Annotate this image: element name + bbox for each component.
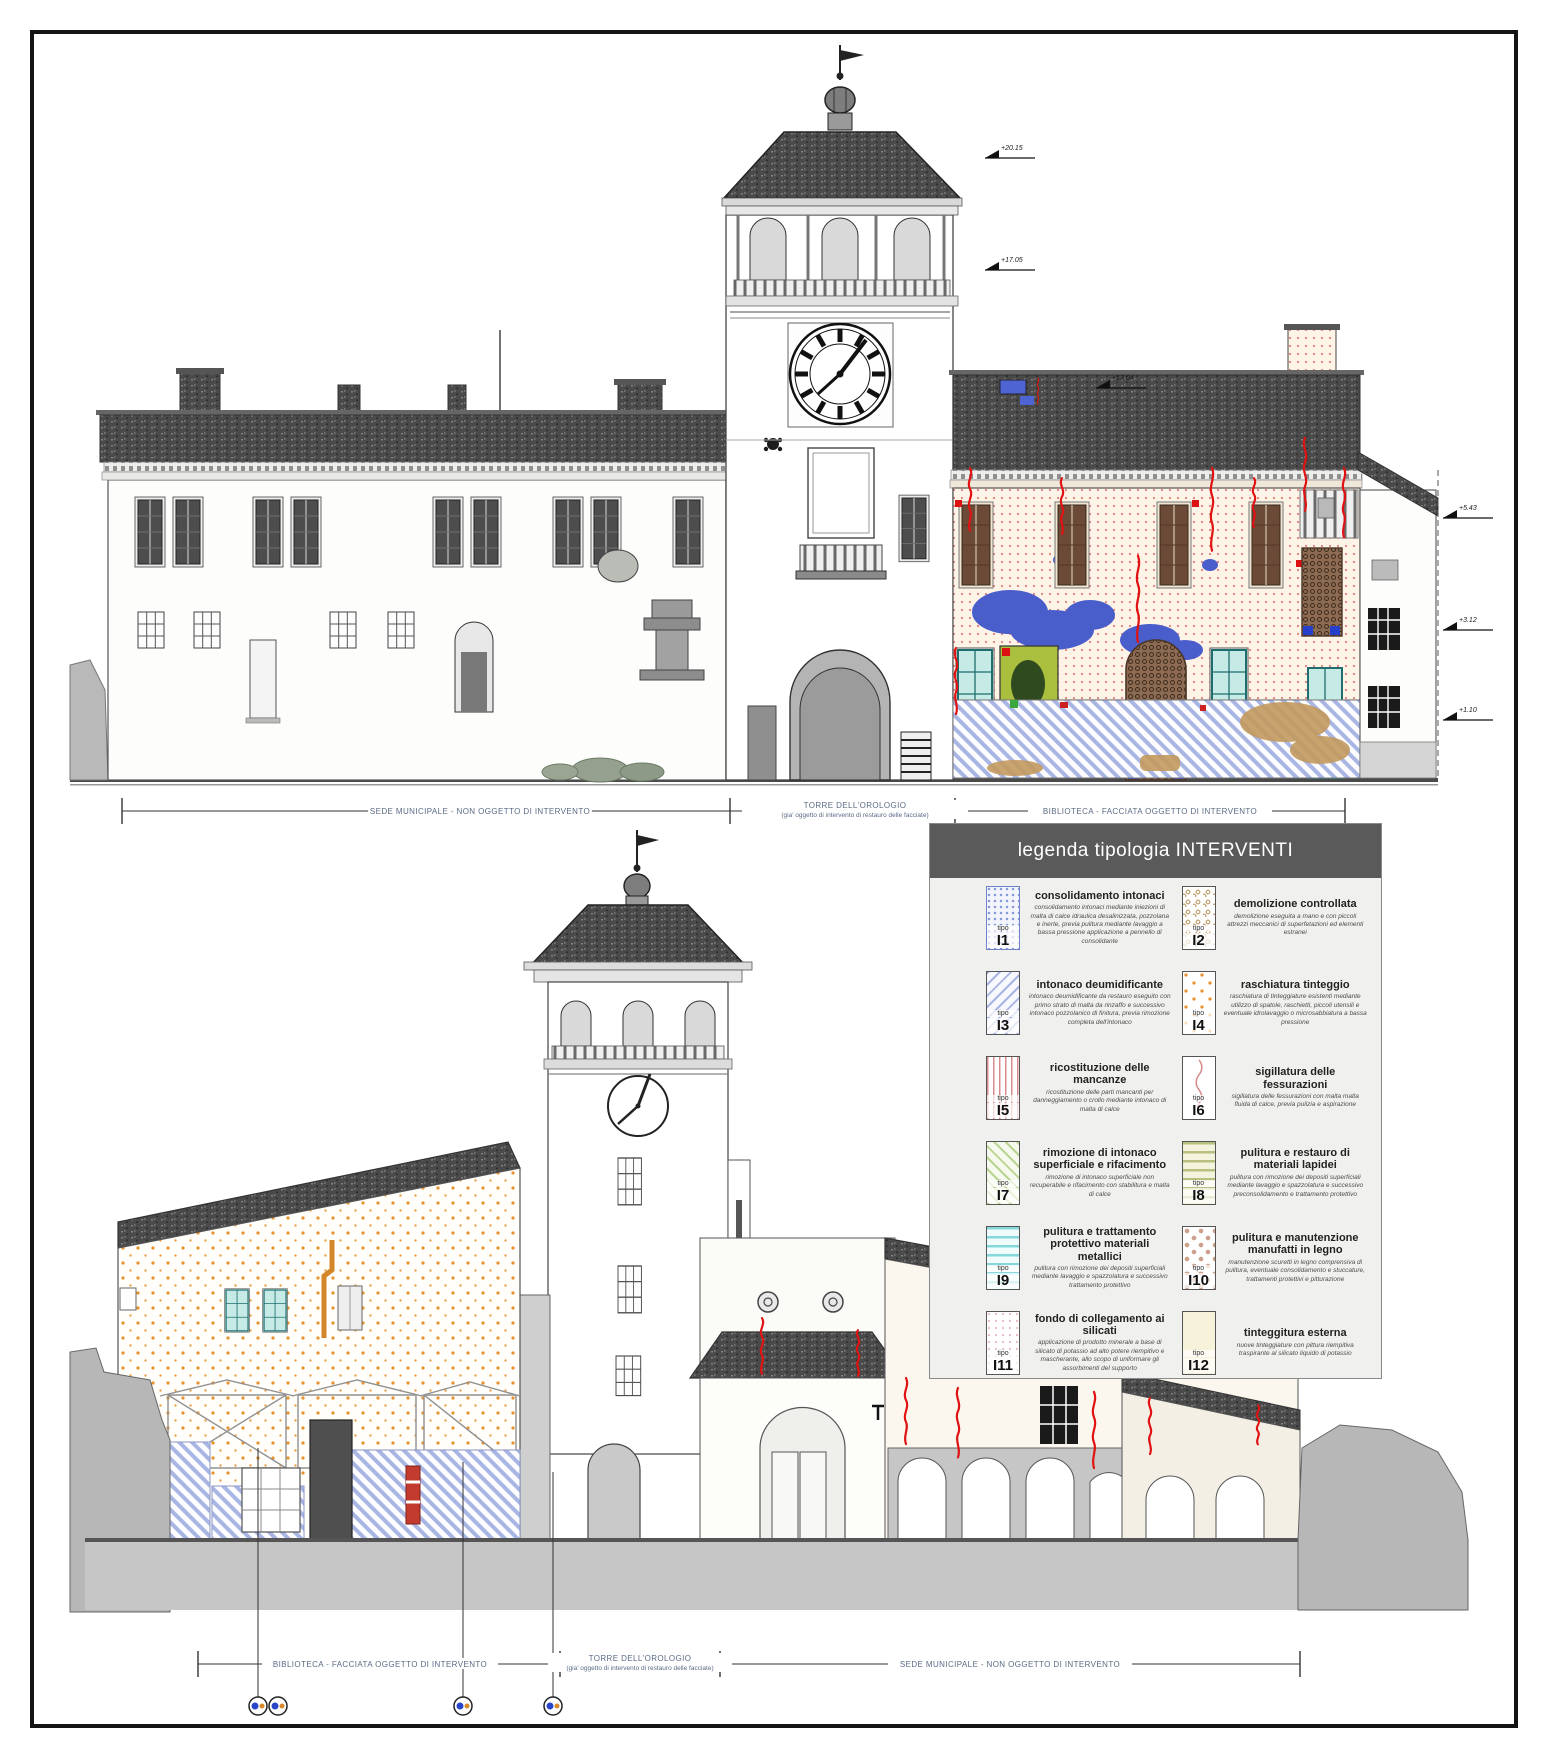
wood-shutter-window xyxy=(1302,548,1342,636)
legend-swatch: tipo I7 xyxy=(986,1141,1020,1205)
legend-tipo-code: I1 xyxy=(987,933,1019,948)
legend-entry-desc: sigillatura delle fessurazioni con malta… xyxy=(1224,1093,1368,1110)
legend-entry: tipo I3 intonaco deumidificante intonaco… xyxy=(986,971,1172,1035)
legend-entry-text: consolidamento intonaci consolidamento i… xyxy=(1028,890,1172,947)
legend-entry: tipo I6 sigillatura delle fessurazioni s… xyxy=(1182,1056,1368,1120)
legend-entry: tipo I4 raschiatura tinteggio raschiatur… xyxy=(1182,971,1368,1035)
legend-entry-text: demolizione controllata demolizione eseg… xyxy=(1224,898,1368,938)
legend-entry-desc: raschiatura di tinteggiature esistenti m… xyxy=(1224,993,1368,1027)
legend-swatch: tipo I11 xyxy=(986,1311,1020,1375)
legend-entry-desc: applicazione di prodotto minerale a base… xyxy=(1028,1339,1172,1373)
legend-entry-desc: manutenzione scuretti in legno comprensi… xyxy=(1224,1259,1368,1284)
legend-entry: tipo I5 ricostituzione delle mancanze ri… xyxy=(986,1056,1172,1120)
legend-tipo-code: I10 xyxy=(1183,1273,1215,1288)
bottom-label-torre: TORRE DELL'OROLOGIO xyxy=(589,1654,692,1663)
top-label-biblioteca: BIBLIOTECA - FACCIATA OGGETTO DI INTERVE… xyxy=(1043,807,1257,816)
legend-swatch: tipo I4 xyxy=(1182,971,1216,1035)
legend-tipo-code: I9 xyxy=(987,1273,1019,1288)
legend-tipo-label: tipo xyxy=(987,1095,1019,1102)
legend-swatch: tipo I6 xyxy=(1182,1056,1216,1120)
legend-tipo-label: tipo xyxy=(987,925,1019,932)
legend-entry-text: pulitura e restauro di materiali lapidei… xyxy=(1224,1147,1368,1199)
legend-entry-title: pulitura e manutenzione manufatti in leg… xyxy=(1224,1232,1368,1257)
legend-entries: tipo I1 consolidamento intonaci consolid… xyxy=(930,878,1381,1375)
white-grid-window xyxy=(242,1468,300,1532)
legend-entry-desc: nuove tinteggiature con pittura riempiti… xyxy=(1224,1342,1368,1359)
callout-markers xyxy=(249,1697,562,1715)
legend-tipo-label: tipo xyxy=(1183,1095,1215,1102)
legend-tipo-code: I11 xyxy=(987,1358,1019,1373)
clock-tower xyxy=(722,45,962,780)
legend-tipo-label: tipo xyxy=(987,1180,1019,1187)
quota-eave: +5.43 xyxy=(1459,505,1477,512)
legend-tipo-code: I12 xyxy=(1183,1358,1215,1373)
legend-entry: tipo I11 fondo di collegamento ai silica… xyxy=(986,1311,1172,1375)
legend-tipo-code: I6 xyxy=(1183,1103,1215,1118)
legend-entry: tipo I10 pulitura e manutenzione manufat… xyxy=(1182,1226,1368,1290)
legend-entry-title: fondo di collegamento ai silicati xyxy=(1028,1313,1172,1338)
quota-tower-belfry: +17.05 xyxy=(1001,257,1023,264)
legend-entry-desc: demolizione eseguita a mano e con piccol… xyxy=(1224,913,1368,938)
legend-entry-text: ricostituzione delle mancanze ricostituz… xyxy=(1028,1062,1172,1114)
legend-entry-text: tinteggitura esterna nuove tinteggiature… xyxy=(1224,1327,1368,1358)
legend-entry: tipo I12 tinteggitura esterna nuove tint… xyxy=(1182,1311,1368,1375)
legend-tipo-label: tipo xyxy=(1183,1350,1215,1357)
legend-swatch: tipo I2 xyxy=(1182,886,1216,950)
legend-swatch: tipo I8 xyxy=(1182,1141,1216,1205)
legend-tipo-label: tipo xyxy=(1183,1265,1215,1272)
legend-swatch: tipo I10 xyxy=(1182,1226,1216,1290)
legend-entry-title: intonaco deumidificante xyxy=(1028,979,1172,991)
legend-swatch: tipo I3 xyxy=(986,971,1020,1035)
legend-entry-desc: consolidamento intonaci mediante iniezio… xyxy=(1028,904,1172,946)
legend-entry-text: rimozione di intonaco superficiale e rif… xyxy=(1028,1147,1172,1199)
legend-entry-text: sigillatura delle fessurazioni sigillatu… xyxy=(1224,1066,1368,1110)
legend-entry: tipo I7 rimozione di intonaco superficia… xyxy=(986,1141,1172,1205)
legend-panel: legenda tipologia INTERVENTI tipo I1 con… xyxy=(929,823,1382,1379)
legend-entry-text: pulitura e trattamento protettivo materi… xyxy=(1028,1226,1172,1290)
quota-floor: +3.12 xyxy=(1459,617,1477,624)
legend-entry-title: sigillatura delle fessurazioni xyxy=(1224,1066,1368,1091)
stairs xyxy=(901,732,931,780)
legend-entry-title: raschiatura tinteggio xyxy=(1224,979,1368,991)
legend-tipo-code: I2 xyxy=(1183,933,1215,948)
biblioteca-facade xyxy=(949,324,1364,780)
biblioteca-rear-facade xyxy=(118,1142,520,1540)
legend-entry-desc: rimozione di intonaco superficiale non r… xyxy=(1028,1174,1172,1199)
legend-entry-title: rimozione di intonaco superficiale e rif… xyxy=(1028,1147,1172,1172)
legend-entry-desc: pulitura con rimozione dei depositi supe… xyxy=(1224,1174,1368,1199)
legend-entry-desc: intonaco deumidificante da restauro eseg… xyxy=(1028,993,1172,1027)
top-label-sede: SEDE MUNICIPALE - NON OGGETTO DI INTERVE… xyxy=(370,807,590,816)
legend-tipo-code: I8 xyxy=(1183,1188,1215,1203)
legend-tipo-label: tipo xyxy=(987,1265,1019,1272)
legend-swatch: tipo I12 xyxy=(1182,1311,1216,1375)
top-elevation-drawing: +20.15 +17.05 +13.04 +5.43 +3.12 +1.10 S… xyxy=(70,45,1493,824)
quota-roof-right: +13.04 xyxy=(1112,375,1134,382)
legend-entry-desc: ricostituzione delle parti mancanti per … xyxy=(1028,1089,1172,1114)
legend-tipo-label: tipo xyxy=(987,1010,1019,1017)
legend-entry-text: intonaco deumidificante intonaco deumidi… xyxy=(1028,979,1172,1027)
legend-swatch: tipo I9 xyxy=(986,1226,1020,1290)
quota-base: +1.10 xyxy=(1459,707,1477,714)
bottom-label-torre-sub: (gia' oggetto di intervento di restauro … xyxy=(566,1665,713,1672)
legend-entry-title: pulitura e restauro di materiali lapidei xyxy=(1224,1147,1368,1172)
legend-entry: tipo I2 demolizione controllata demolizi… xyxy=(1182,886,1368,950)
legend-tipo-label: tipo xyxy=(1183,925,1215,932)
top-label-torre: TORRE DELL'OROLOGIO xyxy=(804,801,907,810)
legend-tipo-code: I3 xyxy=(987,1018,1019,1033)
right-annex-building xyxy=(1358,452,1438,778)
clock-face xyxy=(788,323,893,427)
legend-swatch: tipo I1 xyxy=(986,886,1020,950)
legend-entry-title: pulitura e trattamento protettivo materi… xyxy=(1028,1226,1172,1263)
legend-entry-title: tinteggitura esterna xyxy=(1224,1327,1368,1339)
legend-tipo-code: I5 xyxy=(987,1103,1019,1118)
legend-entry-title: consolidamento intonaci xyxy=(1028,890,1172,902)
legend-tipo-label: tipo xyxy=(1183,1010,1215,1017)
legend-entry: tipo I9 pulitura e trattamento protettiv… xyxy=(986,1226,1172,1290)
legend-entry-desc: pulitura con rimozione dei depositi supe… xyxy=(1028,1265,1172,1290)
legend-entry-text: raschiatura tinteggio raschiatura di tin… xyxy=(1224,979,1368,1027)
legend-entry-title: ricostituzione delle mancanze xyxy=(1028,1062,1172,1087)
legend-tipo-code: I7 xyxy=(987,1188,1019,1203)
legend-entry-text: fondo di collegamento ai silicati applic… xyxy=(1028,1313,1172,1373)
legend-tipo-label: tipo xyxy=(987,1350,1019,1357)
legend-entry: tipo I8 pulitura e restauro di materiali… xyxy=(1182,1141,1368,1205)
bottom-label-sede: SEDE MUNICIPALE - NON OGGETTO DI INTERVE… xyxy=(900,1660,1120,1669)
top-label-torre-sub: (gia' oggetto di intervento di restauro … xyxy=(781,812,928,819)
legend-tipo-label: tipo xyxy=(1183,1180,1215,1187)
legend-title: legenda tipologia INTERVENTI xyxy=(930,824,1381,878)
legend-entry: tipo I1 consolidamento intonaci consolid… xyxy=(986,886,1172,950)
bottom-label-biblioteca: BIBLIOTECA - FACCIATA OGGETTO DI INTERVE… xyxy=(273,1660,487,1669)
red-pole xyxy=(406,1466,420,1524)
quota-tower-top: +20.15 xyxy=(1001,145,1023,152)
legend-entry-title: demolizione controllata xyxy=(1224,898,1368,910)
legend-swatch: tipo I5 xyxy=(986,1056,1020,1120)
left-wing-facade xyxy=(96,330,734,782)
legend-entry-text: pulitura e manutenzione manufatti in leg… xyxy=(1224,1232,1368,1284)
legend-tipo-code: I4 xyxy=(1183,1018,1215,1033)
